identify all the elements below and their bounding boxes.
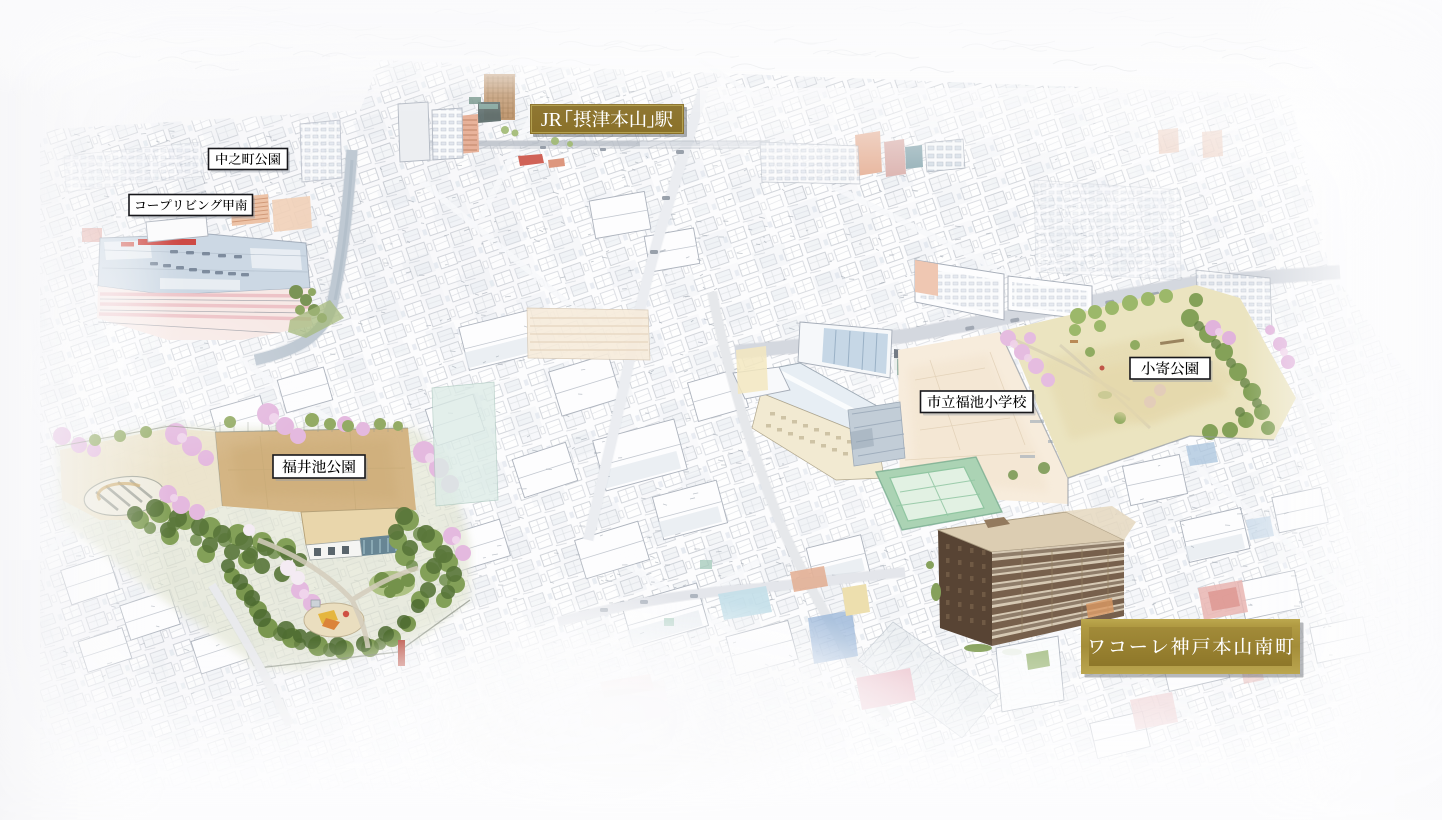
svg-text:JR: JR	[541, 109, 563, 131]
